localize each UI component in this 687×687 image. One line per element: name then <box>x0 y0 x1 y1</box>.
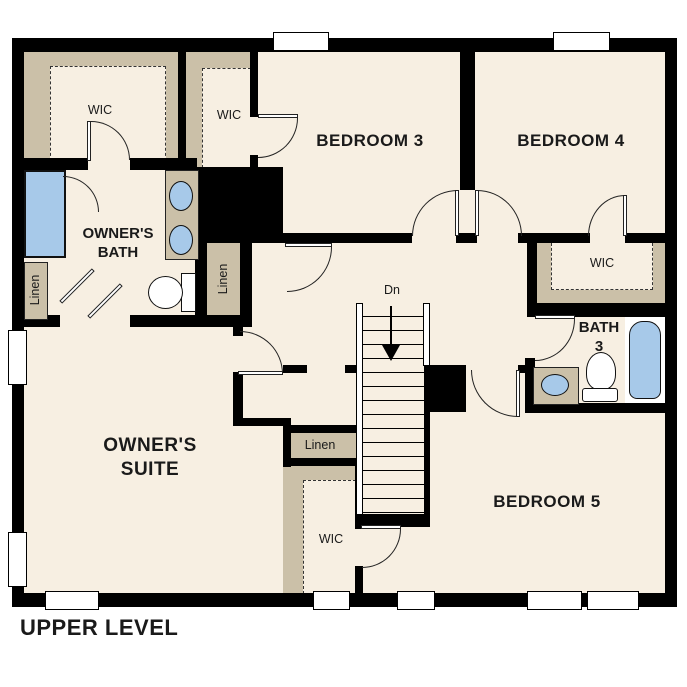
door-leaf-owners-wic <box>87 121 91 161</box>
linen-left-label: Linen <box>28 262 42 318</box>
bedroom4-wic-label: WIC <box>582 256 622 270</box>
window-suite-bottom <box>45 591 99 610</box>
owners-bath-label-line1: OWNER'S <box>82 225 153 242</box>
stairs-down-label: Dn <box>378 283 406 297</box>
wall-door-stub-bed34 <box>456 233 477 243</box>
door-leaf-bedroom4 <box>475 190 479 236</box>
owners-suite-label-line2: SUITE <box>121 459 179 480</box>
owners-suite-label-line1: OWNER'S <box>103 435 197 456</box>
door-leaf-bedroom3-wic <box>258 114 298 118</box>
plan-title: UPPER LEVEL <box>20 615 178 641</box>
bath3-label: BATH 3 <box>569 318 629 356</box>
bedroom5-wic-label: WIC <box>311 532 351 546</box>
stairs-down-arrow-icon <box>382 345 400 361</box>
owners-wic-label: WIC <box>80 103 120 117</box>
window-wic5-bottom <box>313 591 350 610</box>
wall-bedroom4-south-b <box>625 233 667 243</box>
linen-bath-label: Linen <box>216 251 230 307</box>
window-suite-left-1 <box>8 330 27 385</box>
wall-linen-hall-top <box>283 425 362 433</box>
wall-bedroom3-south <box>283 233 412 243</box>
door-leaf-bedroom5-wic <box>361 525 401 529</box>
bath3-sink <box>541 374 569 396</box>
wall-linen-hall-bottom <box>283 458 362 466</box>
wall-wic-divider <box>178 52 186 167</box>
window-alcove-bottom <box>397 591 435 610</box>
owners-suite-label: OWNER'S SUITE <box>70 434 230 482</box>
owners-bath-label-line2: BATH <box>98 244 139 261</box>
bathtub <box>629 321 661 399</box>
door-leaf-owners-suite <box>238 371 283 375</box>
wall-bed34-divider <box>460 52 475 190</box>
door-leaf-bedroom3 <box>455 190 459 236</box>
window-suite-left-2 <box>8 532 27 587</box>
door-leaf-bedroom5 <box>516 370 520 417</box>
chase-stairs <box>422 365 466 412</box>
wall-wic5-east-lower <box>355 566 363 595</box>
bedroom3-wic-label: WIC <box>209 108 249 122</box>
wall-vestibule-a <box>283 365 307 373</box>
owners-bath-label: OWNER'S BATH <box>58 224 178 262</box>
bath3-label-line1: BATH <box>579 319 620 336</box>
chase-center-left <box>195 167 283 243</box>
stairs-rail-left <box>356 303 363 515</box>
bath3-label-line2: 3 <box>595 338 603 355</box>
bedroom3-label: BEDROOM 3 <box>300 131 440 151</box>
window-bedroom3-top <box>273 32 329 51</box>
wall-bedroom3-west-upper <box>250 52 258 117</box>
window-bedroom5-bottom-2 <box>587 591 639 610</box>
owners-toilet-tank <box>181 273 196 312</box>
bedroom5-label: BEDROOM 5 <box>477 492 617 512</box>
floor-plan-upper-level: BEDROOM 3 BEDROOM 4 BEDROOM 5 OWNER'S SU… <box>0 0 687 687</box>
wall-linen-bath-east <box>240 243 252 317</box>
bedroom4-label: BEDROOM 4 <box>501 131 641 151</box>
window-bedroom4-top <box>553 32 610 51</box>
window-bedroom5-bottom-1 <box>527 591 582 610</box>
stairs-arrow-shaft <box>390 306 392 347</box>
door-leaf-hall-bath <box>285 243 332 247</box>
owners-sink-1 <box>169 181 193 211</box>
linen-hall-label: Linen <box>292 438 348 452</box>
stairs-rail-right <box>423 303 430 366</box>
bath3-toilet-bowl <box>586 352 616 390</box>
wall-bedroom3-west-stub <box>250 155 258 167</box>
wall-closet-bottom-b <box>130 158 197 170</box>
bath3-toilet-base <box>582 388 618 402</box>
owners-toilet-bowl <box>148 276 183 309</box>
door-leaf-bedroom4-wic <box>623 195 627 236</box>
wall-exterior-right <box>665 38 677 607</box>
wall-closet-bottom-a <box>12 158 88 170</box>
stairs-treads <box>362 303 424 514</box>
